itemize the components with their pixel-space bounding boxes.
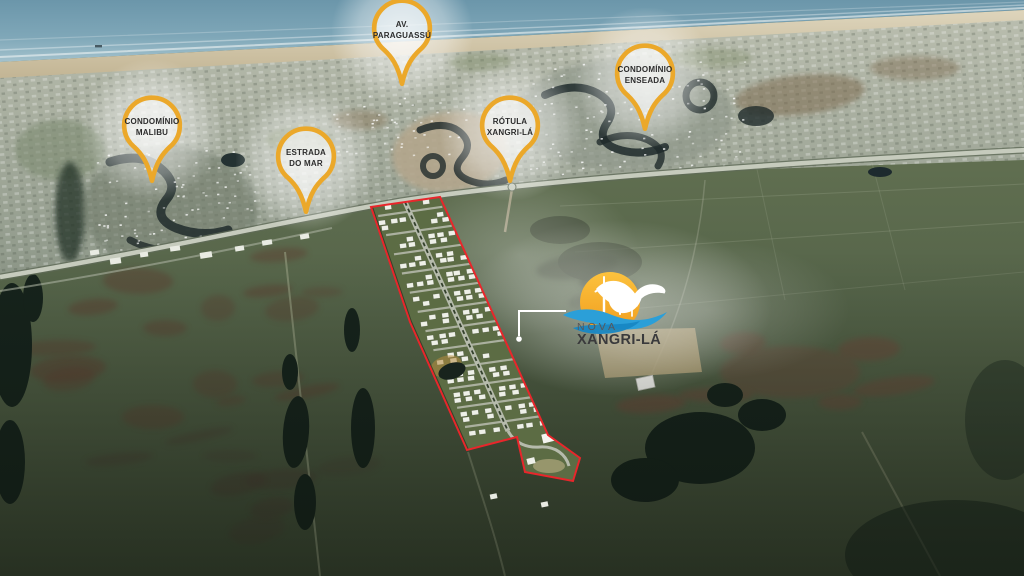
pin-label-line2: PARAGUASSÚ	[373, 31, 431, 41]
pin-label-line1: ESTRADA	[286, 148, 326, 158]
pin-label: ESTRADA DO MAR	[275, 136, 337, 180]
pin-label-line1: RÓTULA	[493, 117, 528, 127]
pin-label-line1: AV.	[396, 20, 409, 30]
logo-wordmark: NOVA XANGRI-LÁ	[577, 322, 661, 348]
logo-nova-xangri-la: NOVA XANGRI-LÁ	[540, 258, 690, 363]
logo-line-xangri-la: XANGRI-LÁ	[577, 333, 661, 348]
aerial-map-scene: NOVA XANGRI-LÁ CONDOMÍNIO MALIBU ESTRADA…	[0, 0, 1024, 576]
pin-label: CONDOMÍNIO MALIBU	[121, 105, 183, 149]
pin-label-line1: CONDOMÍNIO	[125, 117, 180, 127]
pin-label: AV. PARAGUASSÚ	[371, 8, 433, 52]
pin-label-line1: CONDOMÍNIO	[618, 65, 673, 75]
terrain-map	[0, 0, 1024, 576]
pin-label: CONDOMÍNIO ENSEADA	[614, 53, 676, 97]
pin-label: RÓTULA XANGRI-LÁ	[479, 105, 541, 149]
map-pin-condominio-malibu[interactable]: CONDOMÍNIO MALIBU	[119, 96, 185, 183]
map-pin-rotula-xangri-la[interactable]: RÓTULA XANGRI-LÁ	[477, 96, 543, 183]
map-pin-estrada-do-mar[interactable]: ESTRADA DO MAR	[273, 127, 339, 214]
ship	[95, 45, 102, 47]
map-pin-av-paraguassu[interactable]: AV. PARAGUASSÚ	[369, 0, 435, 86]
pin-label-line2: MALIBU	[136, 128, 168, 138]
map-pin-condominio-enseada[interactable]: CONDOMÍNIO ENSEADA	[612, 44, 678, 131]
pin-label-line2: DO MAR	[289, 159, 323, 169]
pin-label-line2: XANGRI-LÁ	[487, 128, 533, 138]
pin-label-line2: ENSEADA	[625, 76, 666, 86]
